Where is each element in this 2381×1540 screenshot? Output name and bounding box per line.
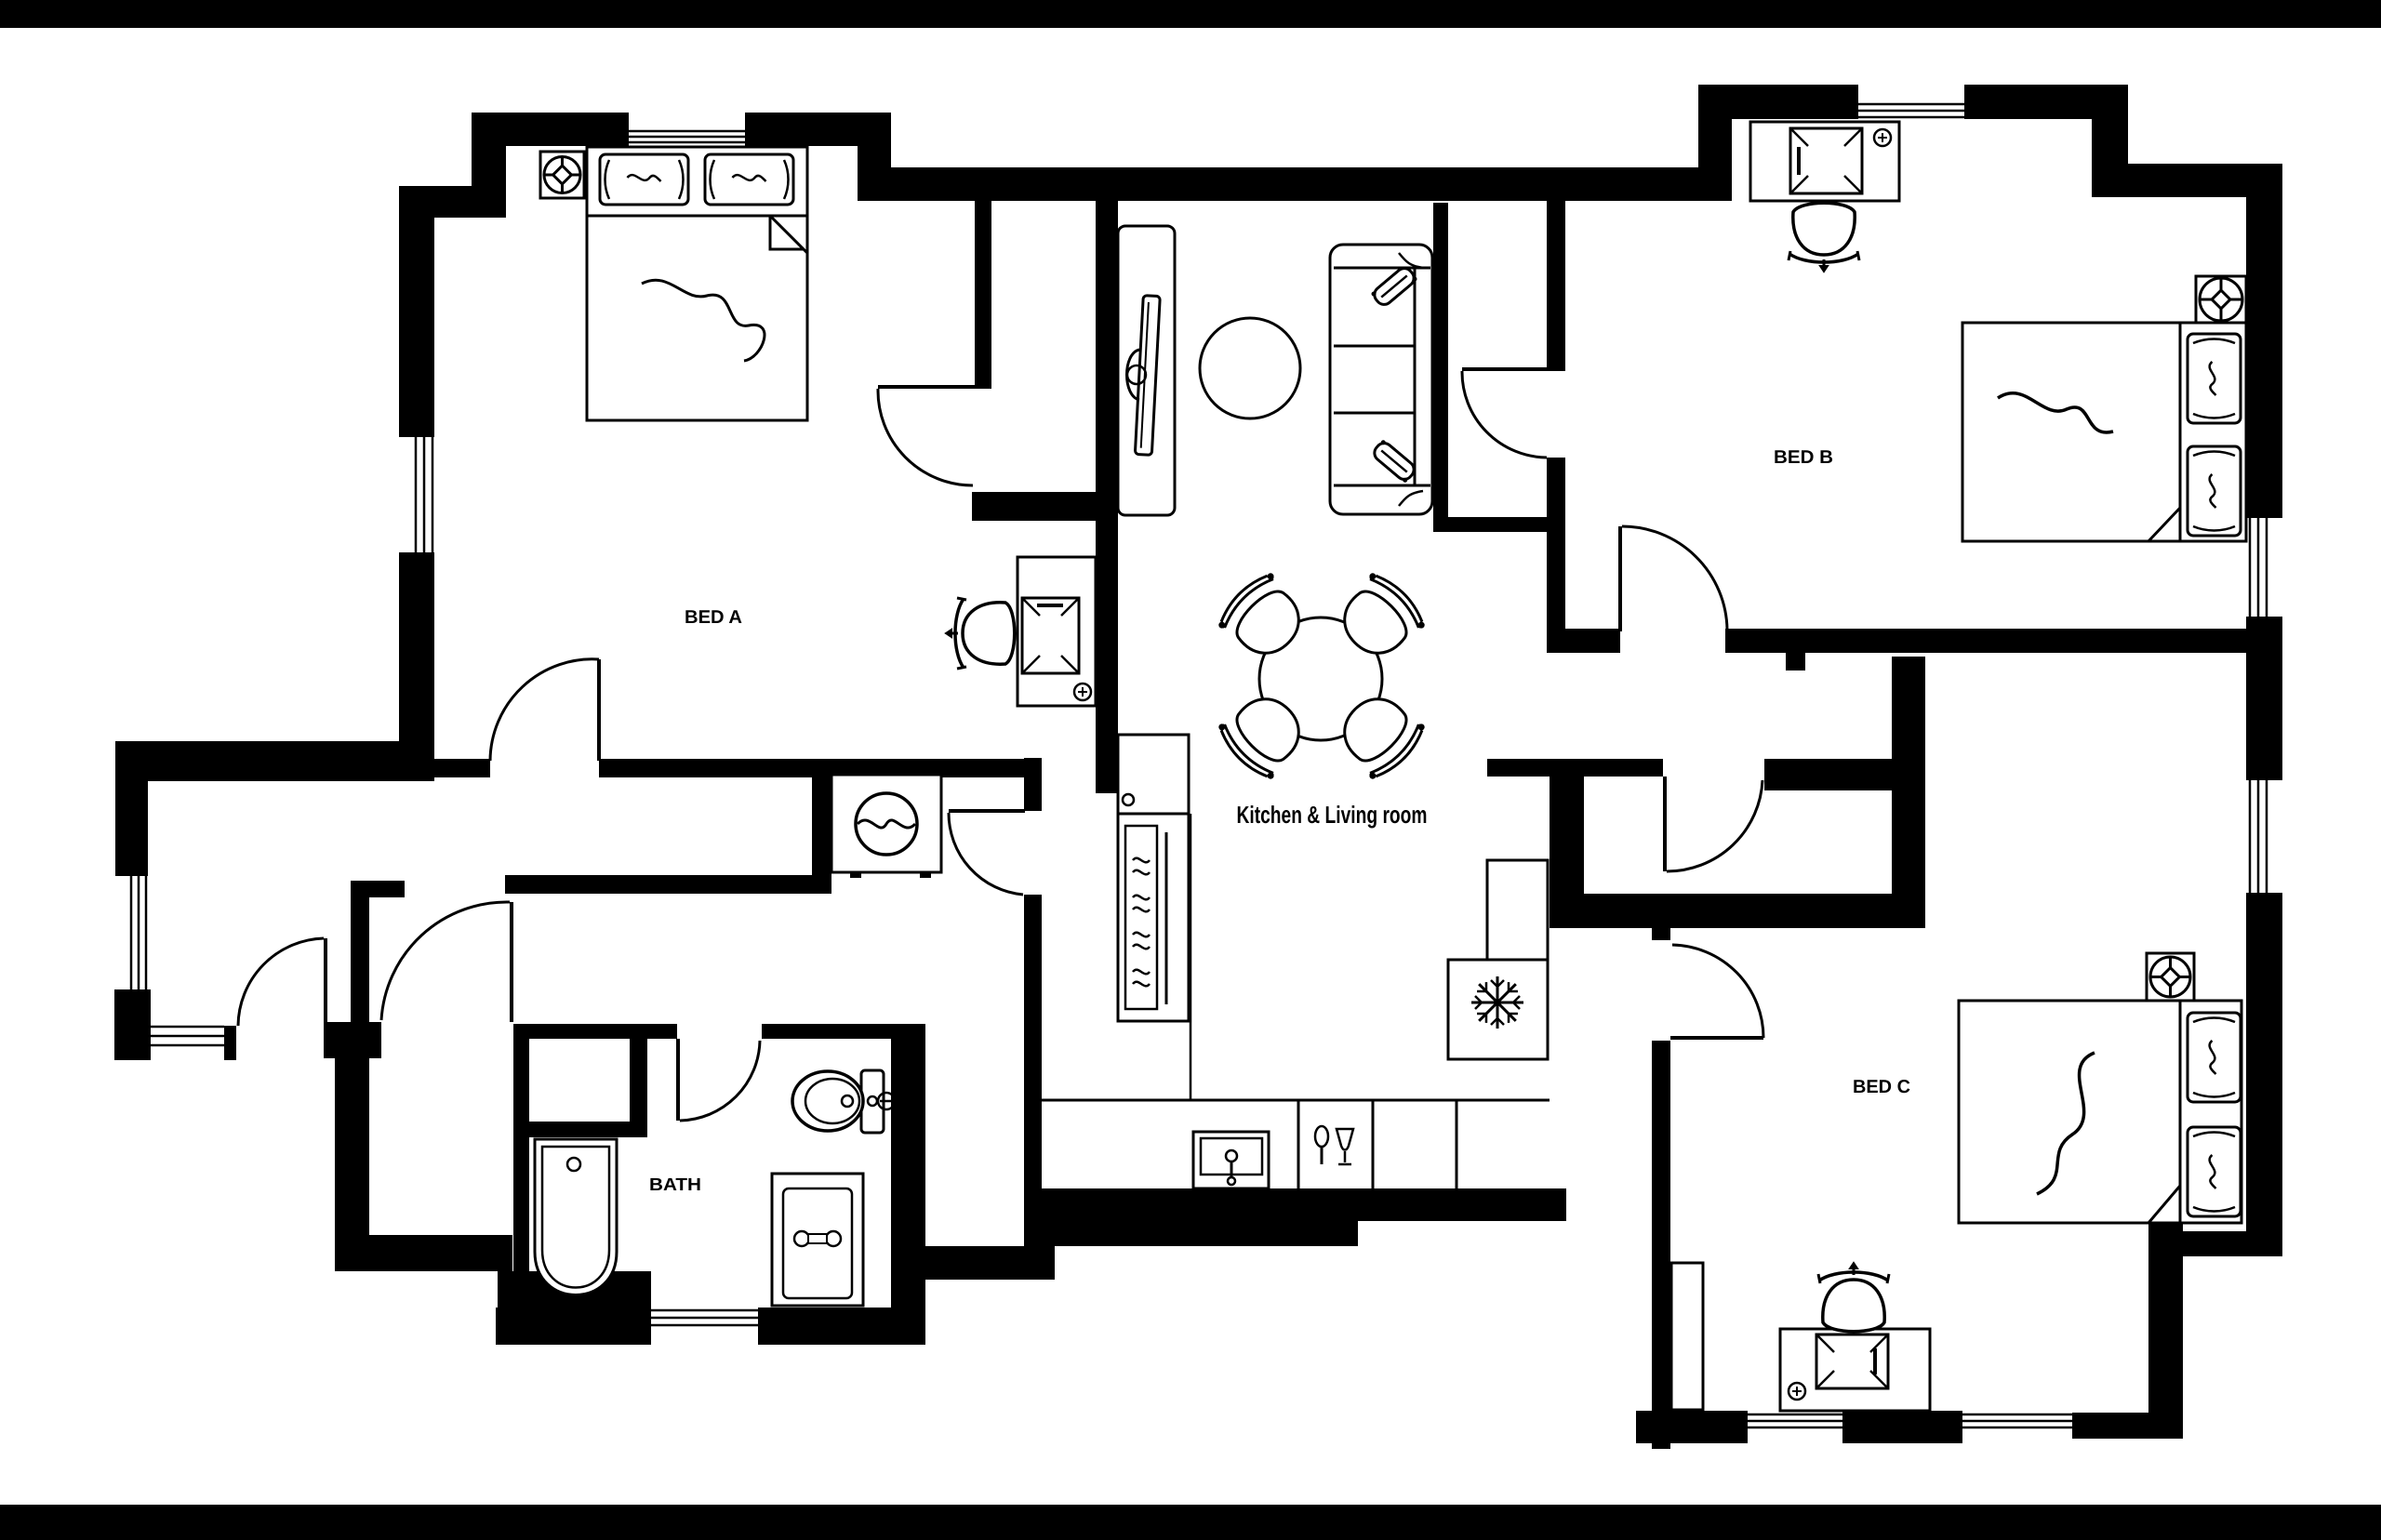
- svg-text:BED A: BED A: [685, 607, 742, 628]
- svg-text:BED C: BED C: [1853, 1077, 1910, 1097]
- svg-text:BATH: BATH: [649, 1175, 701, 1195]
- svg-text:BED B: BED B: [1774, 447, 1833, 468]
- svg-text:Kitchen & Living room: Kitchen & Living room: [1237, 801, 1428, 829]
